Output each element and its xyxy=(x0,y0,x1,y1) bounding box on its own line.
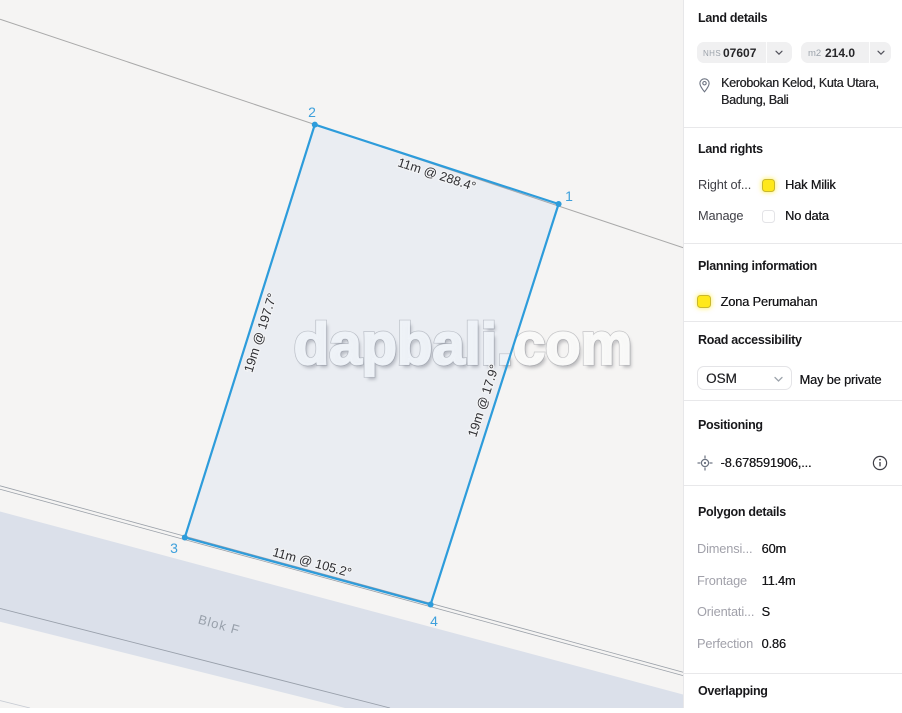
svg-text:2: 2 xyxy=(308,104,316,120)
svg-text:3: 3 xyxy=(170,540,178,556)
svg-text:4: 4 xyxy=(430,613,438,629)
svg-text:1: 1 xyxy=(565,188,573,204)
svg-text:Blok F: Blok F xyxy=(197,612,242,638)
